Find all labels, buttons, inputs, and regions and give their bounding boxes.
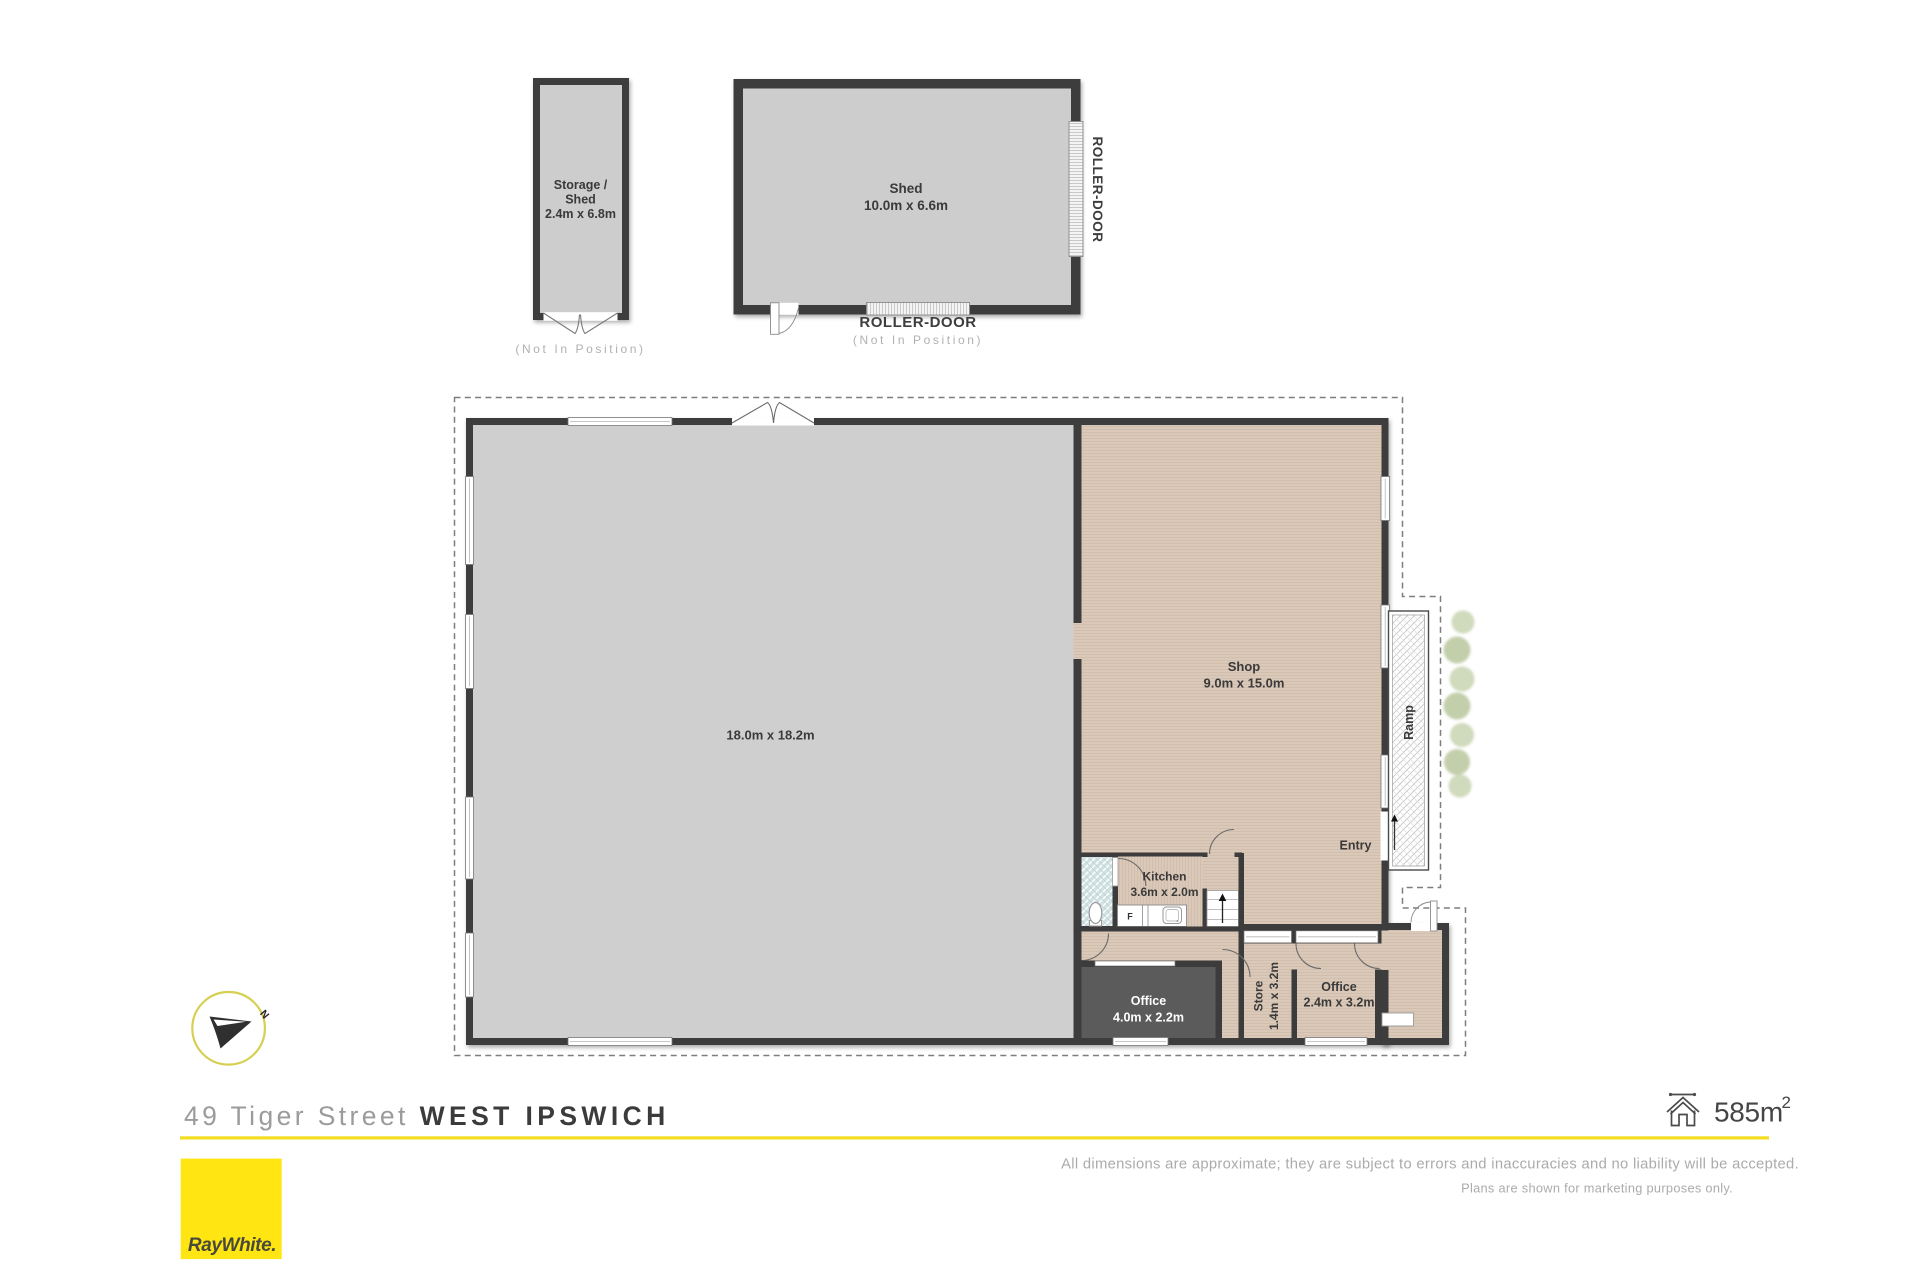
svg-text:All dimensions are approximate: All dimensions are approximate; they are… [1061,1157,1799,1173]
svg-text:3.6m x 2.0m: 3.6m x 2.0m [1130,885,1198,899]
svg-text:Shed: Shed [889,181,922,196]
svg-text:18.0m x 18.2m: 18.0m x 18.2m [726,728,814,743]
svg-text:10.0m x 6.6m: 10.0m x 6.6m [864,198,948,213]
svg-text:Shop: Shop [1228,659,1261,674]
svg-text:Office: Office [1131,994,1166,1008]
svg-text:49 Tiger Street WEST IPSWICH: 49 Tiger Street WEST IPSWICH [184,1101,670,1131]
svg-text:Plans are shown for marketing: Plans are shown for marketing purposes o… [1461,1181,1733,1196]
svg-text:(Not In Position): (Not In Position) [853,333,983,347]
svg-text:(Not In Position): (Not In Position) [515,342,645,356]
svg-text:585m: 585m [1714,1097,1783,1128]
svg-text:Kitchen: Kitchen [1142,870,1186,884]
svg-text:ROLLER-DOOR: ROLLER-DOOR [1090,137,1105,243]
svg-text:Office: Office [1321,980,1356,994]
svg-text:1.4m x 3.2m: 1.4m x 3.2m [1267,962,1281,1030]
svg-text:Store: Store [1252,980,1266,1011]
svg-text:RayWhite.: RayWhite. [188,1235,276,1256]
svg-text:4.0m x 2.2m: 4.0m x 2.2m [1113,1011,1184,1025]
svg-text:Entry: Entry [1340,839,1372,853]
svg-text:2: 2 [1782,1093,1791,1112]
svg-text:2.4m x 3.2m: 2.4m x 3.2m [1304,996,1375,1010]
svg-text:F: F [1127,912,1133,922]
svg-text:Ramp: Ramp [1402,705,1416,740]
svg-text:2.4m x 6.8m: 2.4m x 6.8m [545,207,616,221]
svg-text:Shed: Shed [565,193,596,207]
svg-text:ROLLER-DOOR: ROLLER-DOOR [859,314,976,331]
svg-text:Storage /: Storage / [554,178,608,192]
svg-text:9.0m x 15.0m: 9.0m x 15.0m [1204,676,1285,691]
